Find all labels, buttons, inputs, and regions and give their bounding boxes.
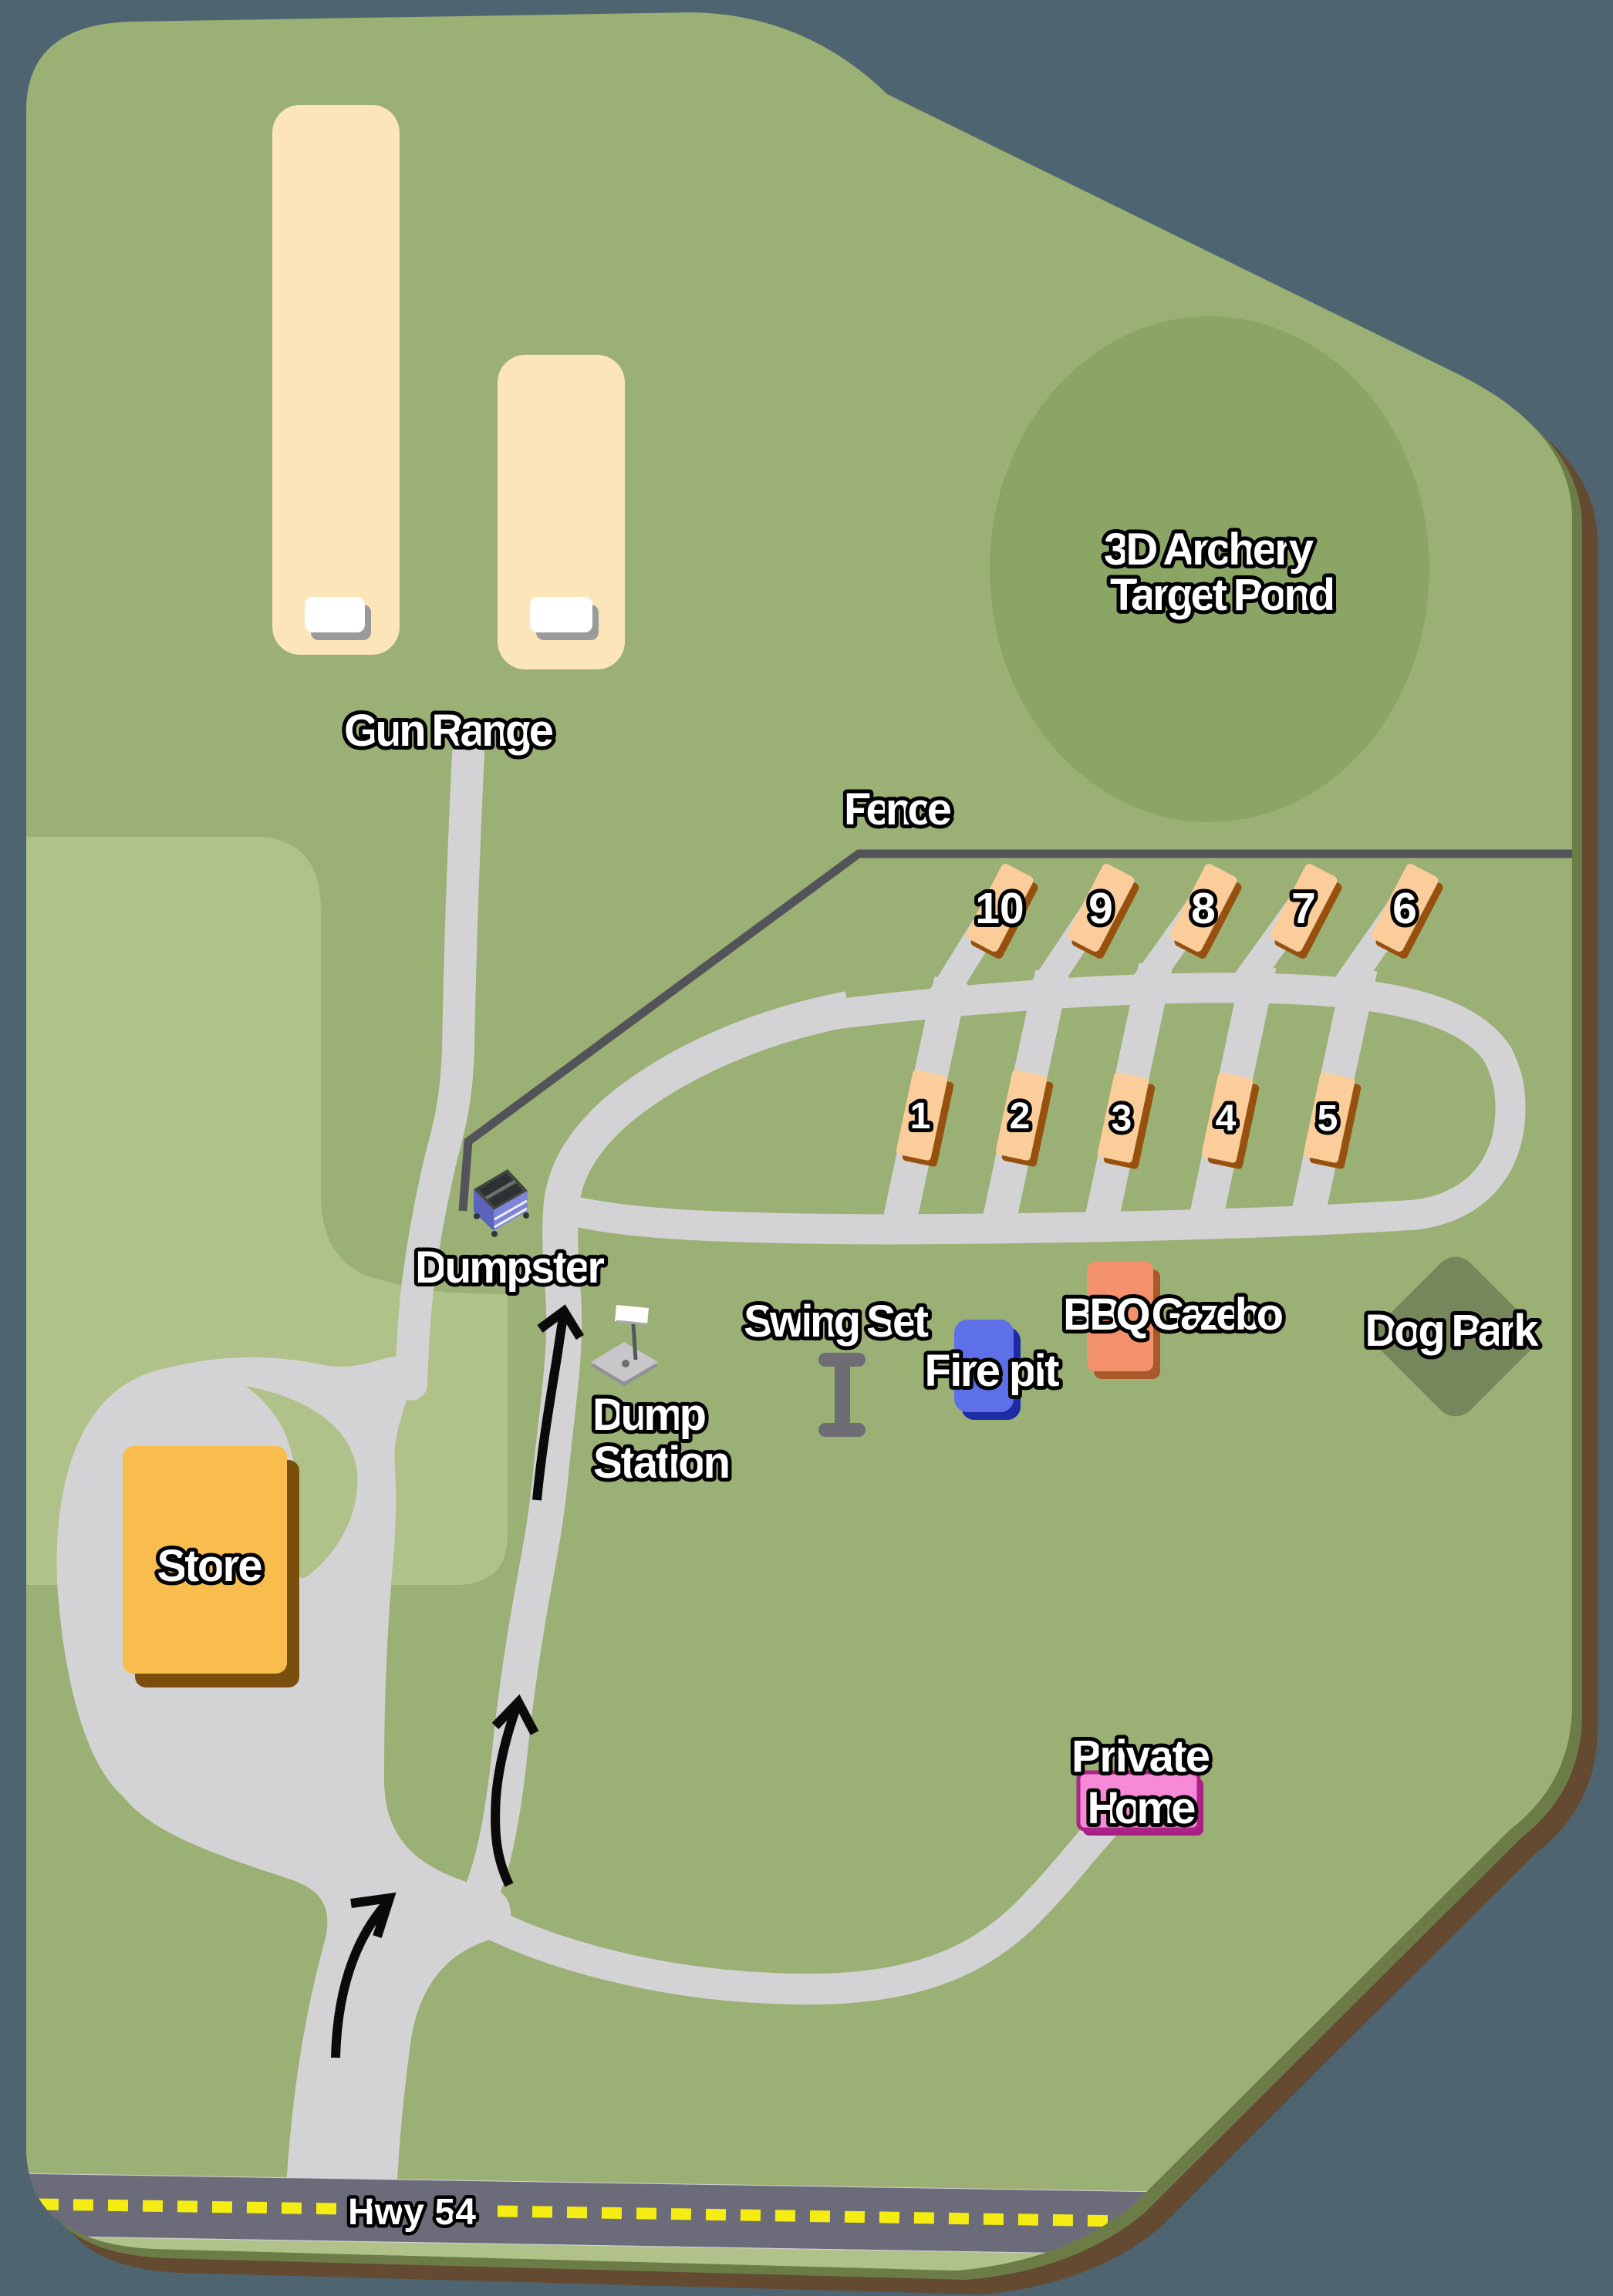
svg-text:9: 9 [1088,884,1113,933]
svg-text:8: 8 [1191,884,1216,933]
svg-text:Dumpster: Dumpster [415,1242,605,1293]
svg-text:Station: Station [593,1438,731,1488]
svg-text:Gun Range: Gun Range [344,706,554,756]
svg-text:3: 3 [1112,1098,1132,1139]
svg-text:Home: Home [1088,1783,1196,1833]
svg-text:Store: Store [157,1541,263,1591]
svg-text:3D Archery: 3D Archery [1104,524,1314,575]
svg-text:Dog Park: Dog Park [1365,1306,1540,1356]
svg-text:1: 1 [910,1096,931,1137]
svg-text:7: 7 [1291,884,1316,933]
svg-text:4: 4 [1216,1098,1237,1139]
svg-text:Dump: Dump [592,1390,707,1440]
svg-text:5: 5 [1318,1098,1338,1139]
svg-text:10: 10 [975,884,1024,933]
svg-text:6: 6 [1392,884,1417,933]
svg-text:BBQ Gazebo: BBQ Gazebo [1063,1290,1284,1340]
svg-text:Hwy 54: Hwy 54 [348,2192,476,2233]
svg-text:Target Pond: Target Pond [1110,570,1335,620]
svg-text:Fire pit: Fire pit [925,1346,1060,1396]
svg-text:Private: Private [1071,1731,1210,1782]
svg-text:Fence: Fence [844,784,952,834]
svg-text:Swing Set: Swing Set [744,1296,929,1347]
svg-text:2: 2 [1010,1096,1031,1137]
